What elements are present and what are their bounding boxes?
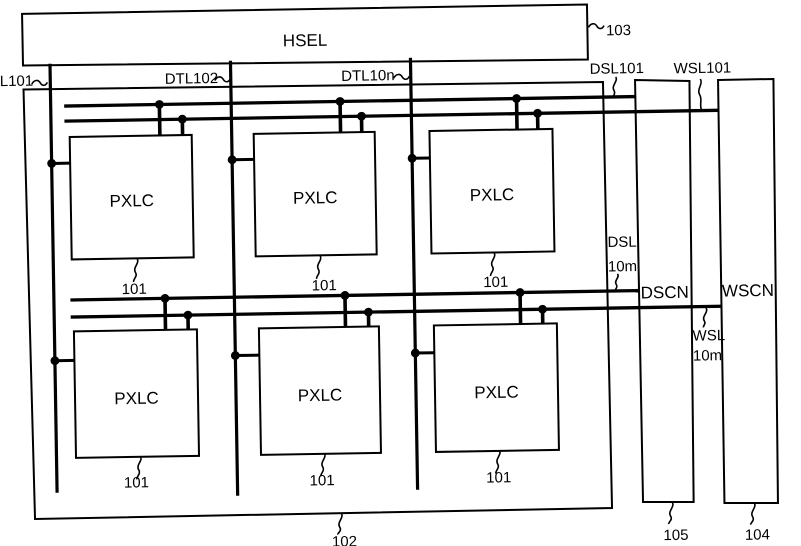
svg-text:DSL: DSL xyxy=(607,234,636,251)
svg-text:PXLC: PXLC xyxy=(474,383,519,403)
svg-text:10m: 10m xyxy=(693,347,722,364)
svg-text:DSL101: DSL101 xyxy=(590,60,644,78)
svg-text:PXLC: PXLC xyxy=(109,191,154,211)
svg-text:101: 101 xyxy=(124,474,149,491)
svg-text:101: 101 xyxy=(309,472,334,489)
svg-text:WSCN: WSCN xyxy=(722,281,774,301)
svg-text:PXLC: PXLC xyxy=(470,185,515,205)
svg-text:DSCN: DSCN xyxy=(641,283,689,303)
svg-text:101: 101 xyxy=(483,274,508,291)
svg-text:PXLC: PXLC xyxy=(298,385,343,405)
svg-text:WSL101: WSL101 xyxy=(674,59,732,77)
svg-text:101: 101 xyxy=(312,277,337,294)
svg-text:101: 101 xyxy=(486,469,511,486)
svg-text:DTL102: DTL102 xyxy=(165,70,219,88)
svg-text:PXLC: PXLC xyxy=(114,389,159,409)
svg-text:10m: 10m xyxy=(608,258,637,275)
svg-text:102: 102 xyxy=(332,533,357,546)
svg-text:WSL: WSL xyxy=(692,327,725,345)
svg-text:L101: L101 xyxy=(0,73,33,91)
svg-text:HSEL: HSEL xyxy=(283,31,328,51)
svg-text:PXLC: PXLC xyxy=(293,188,338,208)
svg-text:104: 104 xyxy=(745,526,770,543)
svg-text:101: 101 xyxy=(122,281,147,298)
svg-text:103: 103 xyxy=(606,22,631,39)
svg-text:105: 105 xyxy=(663,527,688,544)
svg-text:DTL10n: DTL10n xyxy=(341,67,395,85)
